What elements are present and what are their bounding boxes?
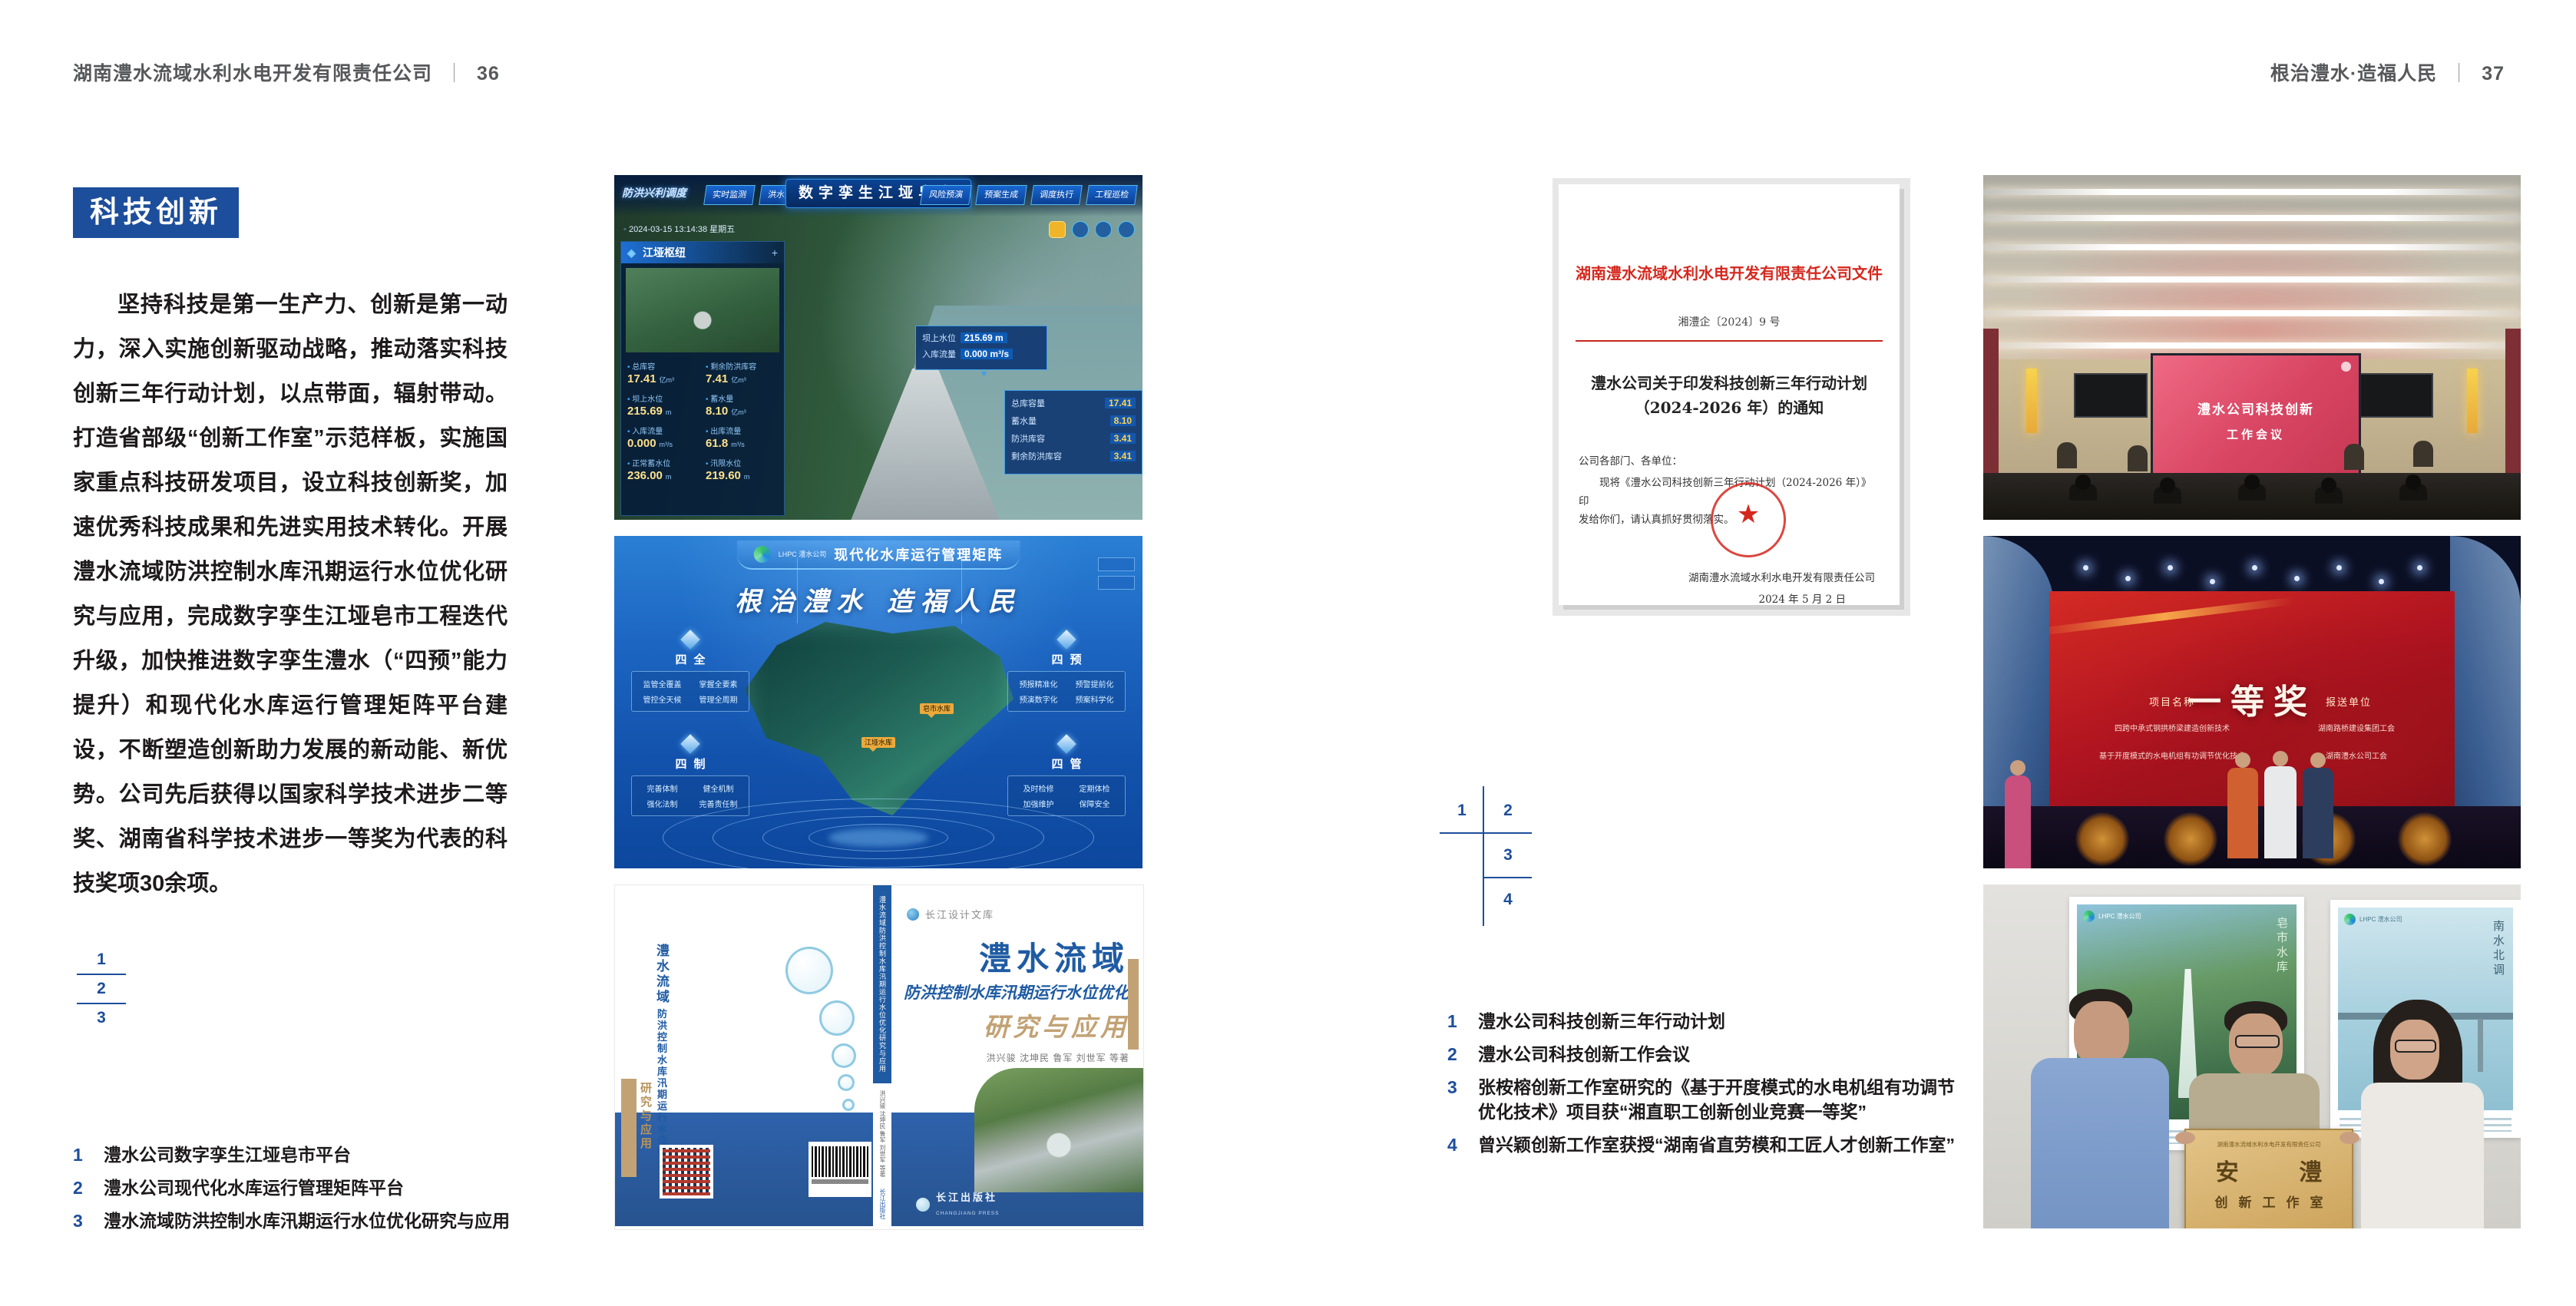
stat: 正常蓄水位236.00m [627,457,699,484]
document-signature: 湖南澧水流域水利水电开发有限责任公司 [1559,569,1900,584]
quadrant-panel: 四管 及时检修 定期体检 加强维护 保障安全 [1007,737,1126,816]
caption-text: 澧水公司现代化水库运行管理矩阵平台 [104,1175,549,1200]
document-red-rule [1576,340,1883,342]
document-date: 2024 年 5 月 2 日 [1559,590,1900,606]
front-title: 澧水流域 [907,933,1129,980]
wall-lamp [2026,369,2037,433]
settings-icon [1118,221,1135,238]
quadrant-panel: 四全 监管全覆盖 掌握全要素 管控全天候 管理全周期 [631,633,749,712]
screen-title-line2: 工作会议 [2153,426,2359,442]
screen-button [1098,557,1135,571]
document-red-header: 湖南澧水流域水利水电开发有限责任公司文件 [1559,261,1900,283]
stage-light [2417,565,2422,570]
module-label: 防洪兴利调度 [622,185,686,200]
plaque-title: 安 澧 [2186,1153,2352,1187]
poster-caption: 南水北调 [2491,920,2507,978]
water-drop [838,1074,855,1091]
hand [2175,1132,2195,1144]
attendee-head [2160,478,2175,493]
index-divider [1483,786,1484,926]
attendee [2128,445,2148,471]
attendee [2057,442,2077,468]
index-divider [77,1003,126,1004]
document-salutation: 公司各部门、各单位： [1579,452,1880,468]
barcode [809,1142,871,1197]
front-subtitle: 防洪控制水库汛期运行水位优化 [891,980,1129,1003]
caption-item: 3 张桉榕创新工作室研究的《基于开度模式的水电机组有功调节优化技术》项目获“湘直… [1447,1075,1968,1124]
screen-title-line1: 澧水公司科技创新 [2153,398,2359,418]
person-body [2031,1058,2169,1228]
company-logo-icon [2344,914,2356,925]
figure-index-number: 2 [77,980,126,998]
caption-text: 澧水公司数字孪生江垭皂市平台 [104,1142,549,1167]
quadrant-icon [680,734,699,753]
quadrant-icon [680,630,699,649]
series-name: 长江设计文库 [925,907,994,921]
figure-index-number: 3 [77,1009,126,1027]
wall-screen [2074,373,2148,418]
matrix-header: LHPC 澧水公司 现代化水库运行管理矩阵 [737,541,1020,570]
figure-index-number: 2 [1496,802,1519,820]
figure-index-number: 3 [1496,846,1519,865]
caption-text: 澧水流域防洪控制水库汛期运行水位优化研究与应用 [104,1208,549,1233]
ripple-glow [828,828,928,847]
publisher-logo-icon [916,1198,930,1212]
index-divider [77,974,126,975]
quadrant-name: 四制 [638,755,749,772]
timestamp: 2024-03-15 13:14:38 星期五 [623,223,735,235]
map-marker: 江垭水库 [861,737,895,748]
document-number: 湘澧企〔2024〕9 号 [1559,314,1900,329]
basin-map [745,622,1014,815]
light-strip [1983,310,2521,316]
caption-number: 4 [1447,1132,1478,1157]
awardee [2303,768,2333,858]
stage-light [2336,565,2342,570]
person-body [2361,1083,2484,1228]
poster-logo: LHPC 澧水公司 [2083,911,2141,922]
stat: 剩余防洪库容7.41亿m³ [706,360,778,388]
figure-index-right: 1 2 3 4 [1440,791,1533,931]
publisher-name: 长江出版社 [936,1192,997,1204]
caption-text: 澧水公司科技创新工作会议 [1478,1042,1956,1066]
light-strip [1983,189,2521,195]
caption-text: 澧水公司科技创新三年行动计划 [1478,1009,1956,1033]
wall-accent [2505,329,2521,474]
plaque-subtitle: 创新工作室 [2186,1192,2352,1211]
light-strip [1983,276,2521,283]
hand [2340,1132,2359,1144]
stat: 蓄水量8.10亿m³ [706,392,778,420]
series-logo-icon [907,908,919,921]
water-drop [832,1043,856,1068]
quadrant-panel: 四制 完善体制 健全机制 强化法制 完善责任制 [631,737,749,816]
stat: 总库容17.41亿m³ [627,360,699,388]
attendee-head [2244,474,2260,490]
publisher-name-en: CHANGJIANG PRESS [936,1211,999,1216]
panel-title: 江垭枢纽 [621,242,784,263]
spine-authors: 洪兴骏 沈坤民 鲁军 刘世军 等著 [873,1088,891,1179]
calligraphy-slogan: 根治澧水 造福人民 [614,580,1143,618]
stage-light [2252,565,2257,570]
logo-text: LHPC 澧水公司 [779,551,827,559]
company-name: 湖南澧水流域水利水电开发有限责任公司 [73,63,432,84]
caption-item: 1 澧水公司数字孪生江垭皂市平台 [73,1142,549,1167]
caption-item: 3 澧水流域防洪控制水库汛期运行水位优化研究与应用 [73,1208,549,1233]
stat: 坝上水位215.69m [627,392,699,420]
stats-grid: 总库容17.41亿m³ 剩余防洪库容7.41亿m³ 坝上水位215.69m 蓄水… [621,357,784,492]
document-title: 澧水公司关于印发科技创新三年行动计划 （2024-2026 年）的通知 [1559,371,1900,420]
glasses [2235,1035,2280,1048]
company-logo-icon [2083,911,2095,922]
water-drop [842,1099,855,1111]
caption-item: 4 曾兴颖创新工作室获授“湖南省直劳模和工匠人才创新工作室” [1447,1132,1968,1157]
caption-number: 3 [73,1208,104,1233]
tab: 调度执行 [1030,185,1083,205]
nav-tabs-right: 风险预演 预案生成 调度执行 工程巡检 [921,185,1136,205]
stage-glow [2075,812,2129,866]
page-number-left: 36 [477,63,500,84]
caption-number: 2 [73,1175,104,1200]
spine-publisher: 长江出版社 [873,1183,891,1225]
attendee [2413,441,2433,467]
quadrant-name: 四全 [638,651,749,667]
figure-official-document: 湖南澧水流域水利水电开发有限责任公司文件 湘澧企〔2024〕9 号 澧水公司关于… [1553,178,1910,616]
host [2005,775,2031,868]
poster-logo: LHPC 澧水公司 [2344,914,2402,925]
matrix-title: 现代化水库运行管理矩阵 [834,544,1003,564]
award-row-org: 湖南澧水公司工会 [2287,749,2426,761]
front-subtitle2: 研究与应用 [907,1007,1129,1043]
star-icon [1713,501,1784,527]
wall-lamp [2467,369,2478,433]
caption-item: 1 澧水公司科技创新三年行动计划 [1447,1009,1968,1033]
attendee-head [2321,478,2336,493]
figure-index-left: 1 2 3 [77,946,126,1032]
front-accent-bar [1128,959,1139,1050]
water-drop [819,1000,855,1036]
slogan-text: 根治澧水·造福人民 [2270,63,2437,84]
stage-glow [2398,812,2452,866]
stage-light [2210,579,2215,584]
studio-plaque: 湖南澧水流域水利水电开发有限责任公司 安 澧 创新工作室 [2184,1129,2353,1228]
header-divider: ｜ [445,63,465,84]
section-title: 科技创新 [73,187,239,238]
caption-number: 2 [1447,1042,1478,1066]
index-divider [1440,832,1532,834]
figure-index-number: 1 [77,951,126,969]
reservoir-info-panel: 总库容量17.41 蓄水量8.10 防洪库容3.41 剩余防洪库容3.41 [1004,390,1143,474]
poster-caption: 皂市水库 [2274,917,2290,975]
series-row: 长江设计文库 [907,907,994,921]
light-strip [1983,215,2521,221]
official-seal [1711,482,1786,557]
stat: 出库流量61.8m³/s [706,425,778,452]
quadrant-icon [1057,734,1076,753]
publisher-row: 长江出版社 CHANGJIANG PRESS [916,1191,999,1218]
tab: 工程巡检 [1086,185,1138,205]
screen-logo-icon [2341,362,2351,372]
caption-list-right: 1 澧水公司科技创新三年行动计划 2 澧水公司科技创新工作会议 3 张桉榕创新工… [1447,1009,1968,1165]
stage-glow [2164,812,2217,866]
caption-text: 张桉榕创新工作室研究的《基于开度模式的水电机组有功调节优化技术》项目获“湘直职工… [1478,1075,1956,1124]
qr-code [660,1145,713,1199]
locate-icon [1095,221,1112,238]
layers-icon [1072,221,1089,238]
photo-innovation-studio-group: LHPC 澧水公司 皂市水库 LHPC 澧水公司 南水北调 [1983,884,2521,1228]
body-paragraph: 坚持科技是第一生产力、创新是第一动力，深入实施创新驱动战略，推动落实科技创新三年… [73,283,508,906]
quadrant-icon [1057,630,1076,649]
page-header-right: 根治澧水·造福人民｜37 [2270,58,2505,86]
caption-number: 3 [1447,1075,1478,1124]
light-strip [1983,342,2521,349]
wall-accent [1983,329,1999,474]
glasses [2395,1040,2436,1053]
company-logo-icon [754,546,771,563]
figure-index-number: 4 [1496,891,1519,909]
photo-innovation-meeting: 澧水公司科技创新 工作会议 [1983,175,2521,520]
stage-light [2294,576,2300,581]
quadrant-name: 四管 [1014,755,1126,772]
person-head [2074,1001,2129,1066]
award-row-org: 湖南路桥建设集团工会 [2287,722,2426,733]
photo-award-ceremony: 一等奖 项目名称 报送单位 四跨中承式钢拱桥梁建造创新技术 湖南路桥建设集团工会… [1983,536,2521,868]
quadrant-name: 四预 [1014,651,1126,667]
authors-line: 洪兴骏 沈坤民 鲁军 刘世军 等著 [907,1051,1129,1064]
screen-streak [2049,597,2294,636]
column-header-project: 项目名称 [2095,694,2249,709]
plaque-org-line: 湖南澧水流域水利水电开发有限责任公司 [2186,1140,2352,1149]
stage-light [2083,565,2088,570]
quadrant-panel: 四预 预报精准化 预警提前化 预演数字化 预案科学化 [1007,633,1126,712]
back-subtitle: 研究与应用 [637,1082,653,1151]
projection-screen: 澧水公司科技创新 工作会议 [2151,353,2361,479]
award-row-project: 四跨中承式钢拱桥梁建造创新技术 [2057,722,2287,733]
stat: 汛限水位219.60m [706,457,778,484]
stage-light [2379,579,2384,584]
back-accent-block [621,1079,637,1177]
light-strip [1983,244,2521,250]
water-drop [785,947,833,994]
page-header-left: 湖南澧水流域水利水电开发有限责任公司｜36 [73,58,500,86]
caption-item: 2 澧水公司科技创新工作会议 [1447,1042,1968,1066]
figure-matrix-platform: LHPC 澧水公司 现代化水库运行管理矩阵 根治澧水 造福人民 皂市水库 江垭水… [614,536,1143,868]
ceiling [1983,175,2521,359]
document-page: 湖南澧水流域水利水电开发有限责任公司文件 湘澧企〔2024〕9 号 澧水公司关于… [1559,184,1900,605]
map-marker: 皂市水库 [920,703,954,714]
caption-item: 2 澧水公司现代化水库运行管理矩阵平台 [73,1175,549,1200]
map-tooltip: 坝上水位215.69 m 入库流量0.000 m³/s [915,326,1047,370]
stage-light [2125,576,2131,581]
award-row-project: 基于开度模式的水电机组有功调节优化技术 [2057,749,2287,761]
tab: 风险预演 [920,185,972,205]
header-divider: ｜ [2449,63,2469,84]
user-icon [1049,221,1066,238]
tab: 实时监测 [703,185,756,205]
wall-screen [2359,373,2433,418]
column-header-org: 报送单位 [2280,694,2418,709]
hud-icon-row [1049,221,1135,238]
stage-light [2168,565,2173,570]
dam-photo-inset [974,1068,1143,1192]
tab: 预案生成 [975,185,1027,205]
awardee [2227,768,2258,858]
bridge-pier [2478,1019,2483,1072]
dam-thumbnail [626,268,779,352]
index-divider [1483,877,1532,878]
brochure-spread: 湖南澧水流域水利水电开发有限责任公司｜36 根治澧水·造福人民｜37 科技创新 … [0,0,2576,1306]
attendee-head [2406,474,2421,490]
caption-number: 1 [1447,1009,1478,1033]
awardee [2264,766,2297,858]
caption-text: 曾兴颖创新工作室获授“湖南省直劳模和工匠人才创新工作室” [1478,1132,1956,1157]
station-panel: 江垭枢纽 总库容17.41亿m³ 剩余防洪库容7.41亿m³ 坝上水位215.6… [620,241,785,516]
figure-book-cover: 澧水流域 防洪控制水库汛期运行水位优化 研究与应用 澧水流域防洪控制水库汛期运行… [614,884,1144,1230]
figure-digital-twin-platform: 防洪兴利调度 实时监测 洪水预报 防洪预警 数字孪生江垭皂市 风险预演 预案生成… [614,175,1143,520]
caption-number: 1 [73,1142,104,1167]
attendee [2344,444,2364,470]
stat: 入库流量0.000m³/s [627,425,699,452]
dashboard-topbar: 防洪兴利调度 实时监测 洪水预报 防洪预警 数字孪生江垭皂市 风险预演 预案生成… [614,175,1143,217]
attendee-head [2075,474,2091,490]
caption-list-left: 1 澧水公司数字孪生江垭皂市平台 2 澧水公司现代化水库运行管理矩阵平台 3 澧… [73,1142,549,1242]
page-number-right: 37 [2482,63,2505,84]
spine-title: 澧水流域防洪控制水库汛期运行水位优化研究与应用 [873,885,891,1083]
figure-index-number: 1 [1450,802,1473,820]
